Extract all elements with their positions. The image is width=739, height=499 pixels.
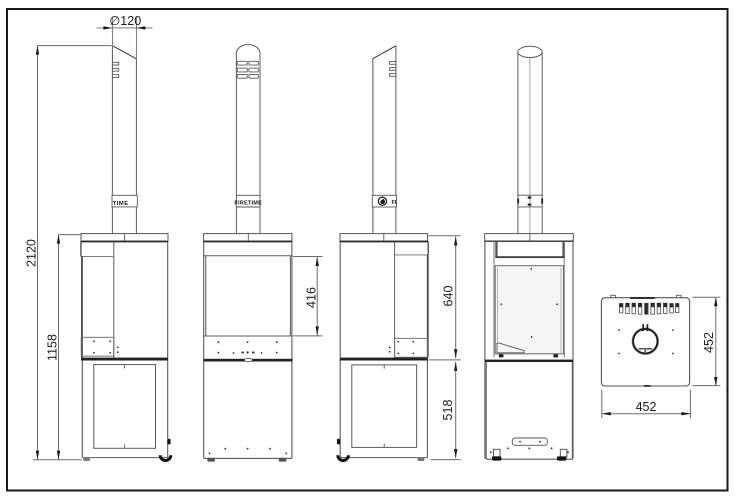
svg-text:452: 452 [702, 332, 716, 353]
svg-text:2120: 2120 [25, 239, 39, 267]
svg-text:416: 416 [304, 287, 318, 308]
svg-text:1158: 1158 [46, 334, 60, 361]
svg-text:640: 640 [442, 286, 456, 307]
svg-text:518: 518 [441, 400, 455, 421]
svg-text:452: 452 [636, 400, 657, 414]
svg-text:∅120: ∅120 [109, 14, 141, 28]
svg-text:TIME: TIME [113, 201, 129, 207]
svg-text:FIRETIME: FIRETIME [234, 200, 262, 206]
svg-text:FI: FI [392, 200, 397, 206]
